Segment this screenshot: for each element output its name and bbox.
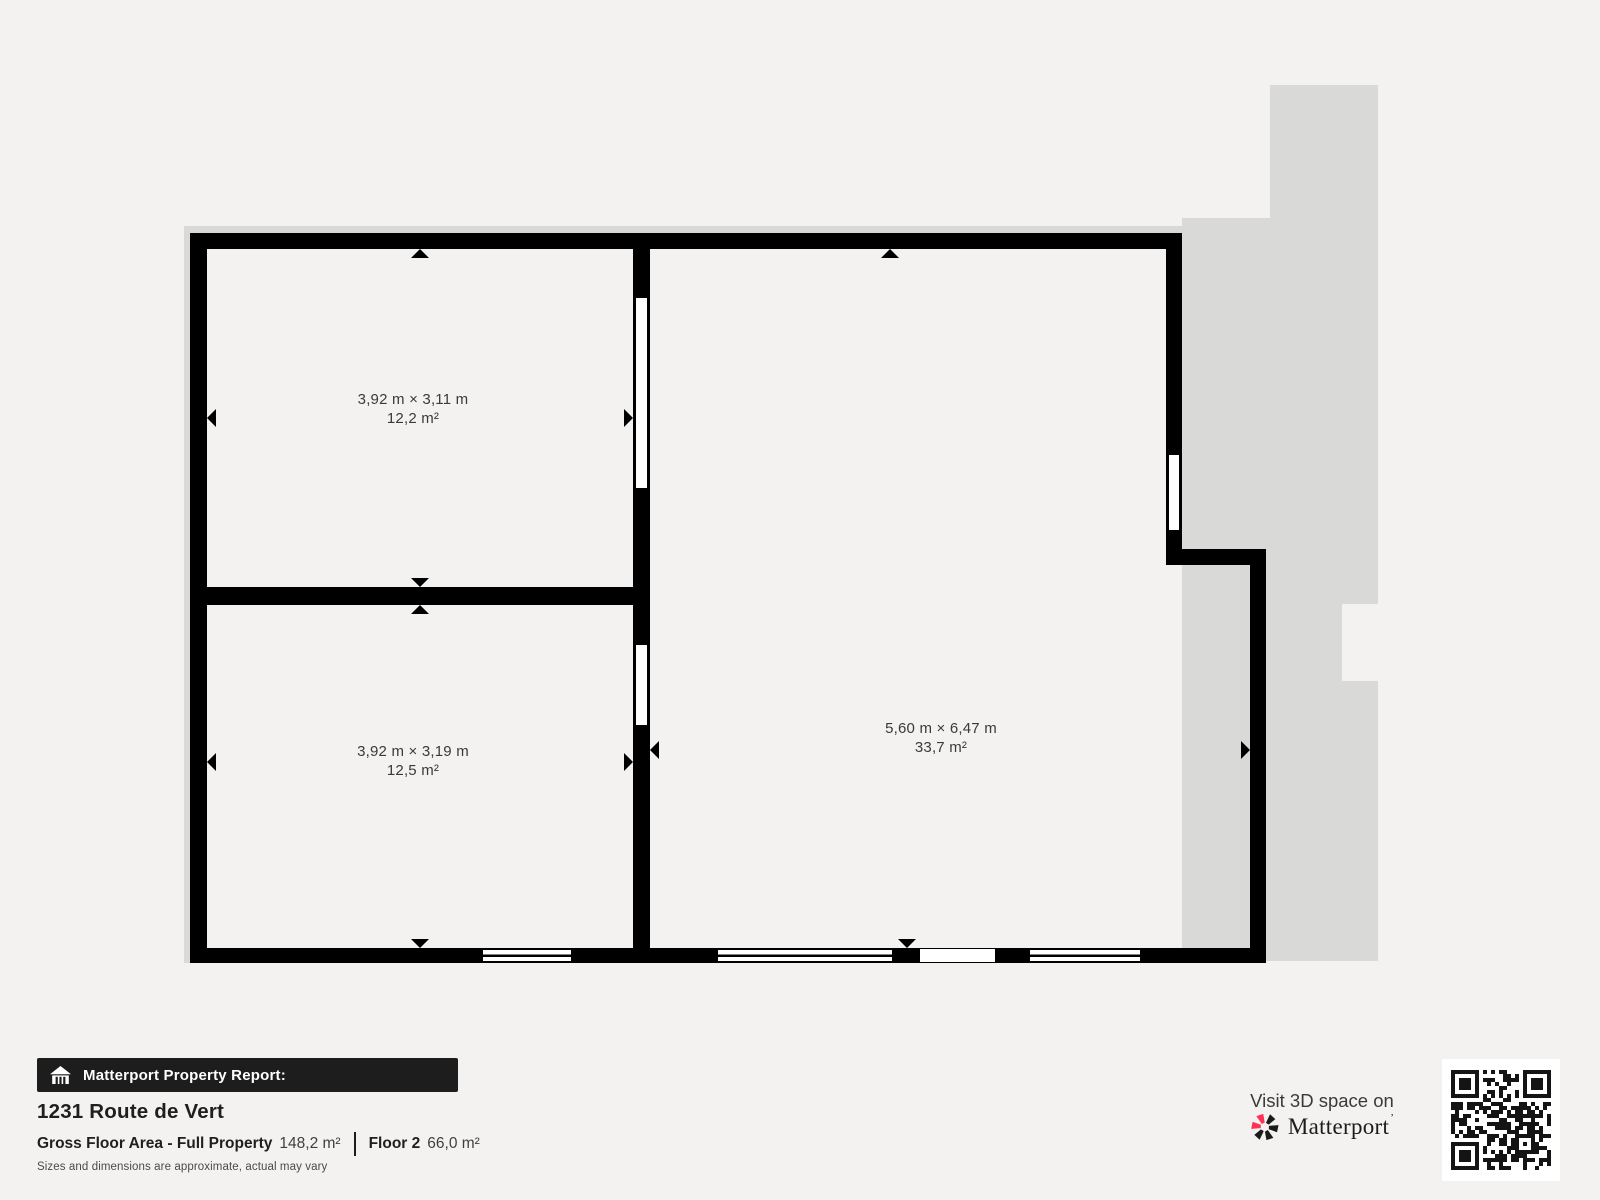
room-area: 33,7 m² (885, 738, 997, 757)
room-dimensions: 5,60 m × 6,47 m (885, 719, 997, 738)
silhouette-notch (1342, 604, 1378, 681)
room-label-bottom-left: 3,92 m × 3,19 m 12,5 m² (357, 742, 469, 780)
trademark-mark: ’ (1390, 1112, 1394, 1124)
room-area: 12,5 m² (357, 761, 469, 780)
matterport-brand-row: Matterport’ (1250, 1112, 1394, 1142)
room-label-right: 5,60 m × 6,47 m 33,7 m² (885, 719, 997, 757)
qr-code (1451, 1070, 1551, 1170)
room-dimensions: 3,92 m × 3,11 m (358, 390, 469, 409)
matterport-logo-icon (1250, 1113, 1280, 1141)
report-banner: Matterport Property Report: (37, 1058, 458, 1092)
report-banner-label: Matterport Property Report: (83, 1067, 286, 1084)
room-area: 12,2 m² (358, 409, 469, 428)
property-address: 1231 Route de Vert (37, 1100, 224, 1124)
disclaimer-text: Sizes and dimensions are approximate, ac… (37, 1161, 327, 1173)
divider (354, 1132, 356, 1156)
floor-label: Floor 2 (369, 1135, 421, 1153)
qr-code-card (1442, 1059, 1560, 1181)
door-openings (636, 298, 1179, 962)
visit-3d-text: Visit 3D space on (1250, 1090, 1394, 1112)
gross-floor-area-label: Gross Floor Area - Full Property (37, 1135, 272, 1153)
floor-area-value: 66,0 m² (427, 1135, 480, 1153)
matterport-floor-plan-report: 3,92 m × 3,11 m 12,2 m² 3,92 m × 3,19 m … (0, 0, 1600, 1200)
room-label-top-left: 3,92 m × 3,11 m 12,2 m² (358, 390, 469, 428)
floorplan-canvas (0, 0, 1600, 1200)
home-icon (50, 1066, 71, 1085)
floor-silhouette (184, 85, 1378, 963)
room-dimensions: 3,92 m × 3,19 m (357, 742, 469, 761)
gross-floor-area-value: 148,2 m² (279, 1135, 340, 1153)
floor-area-line: Gross Floor Area - Full Property 148,2 m… (37, 1131, 480, 1157)
matterport-wordmark: Matterport’ (1288, 1114, 1394, 1140)
walls (190, 233, 1266, 963)
